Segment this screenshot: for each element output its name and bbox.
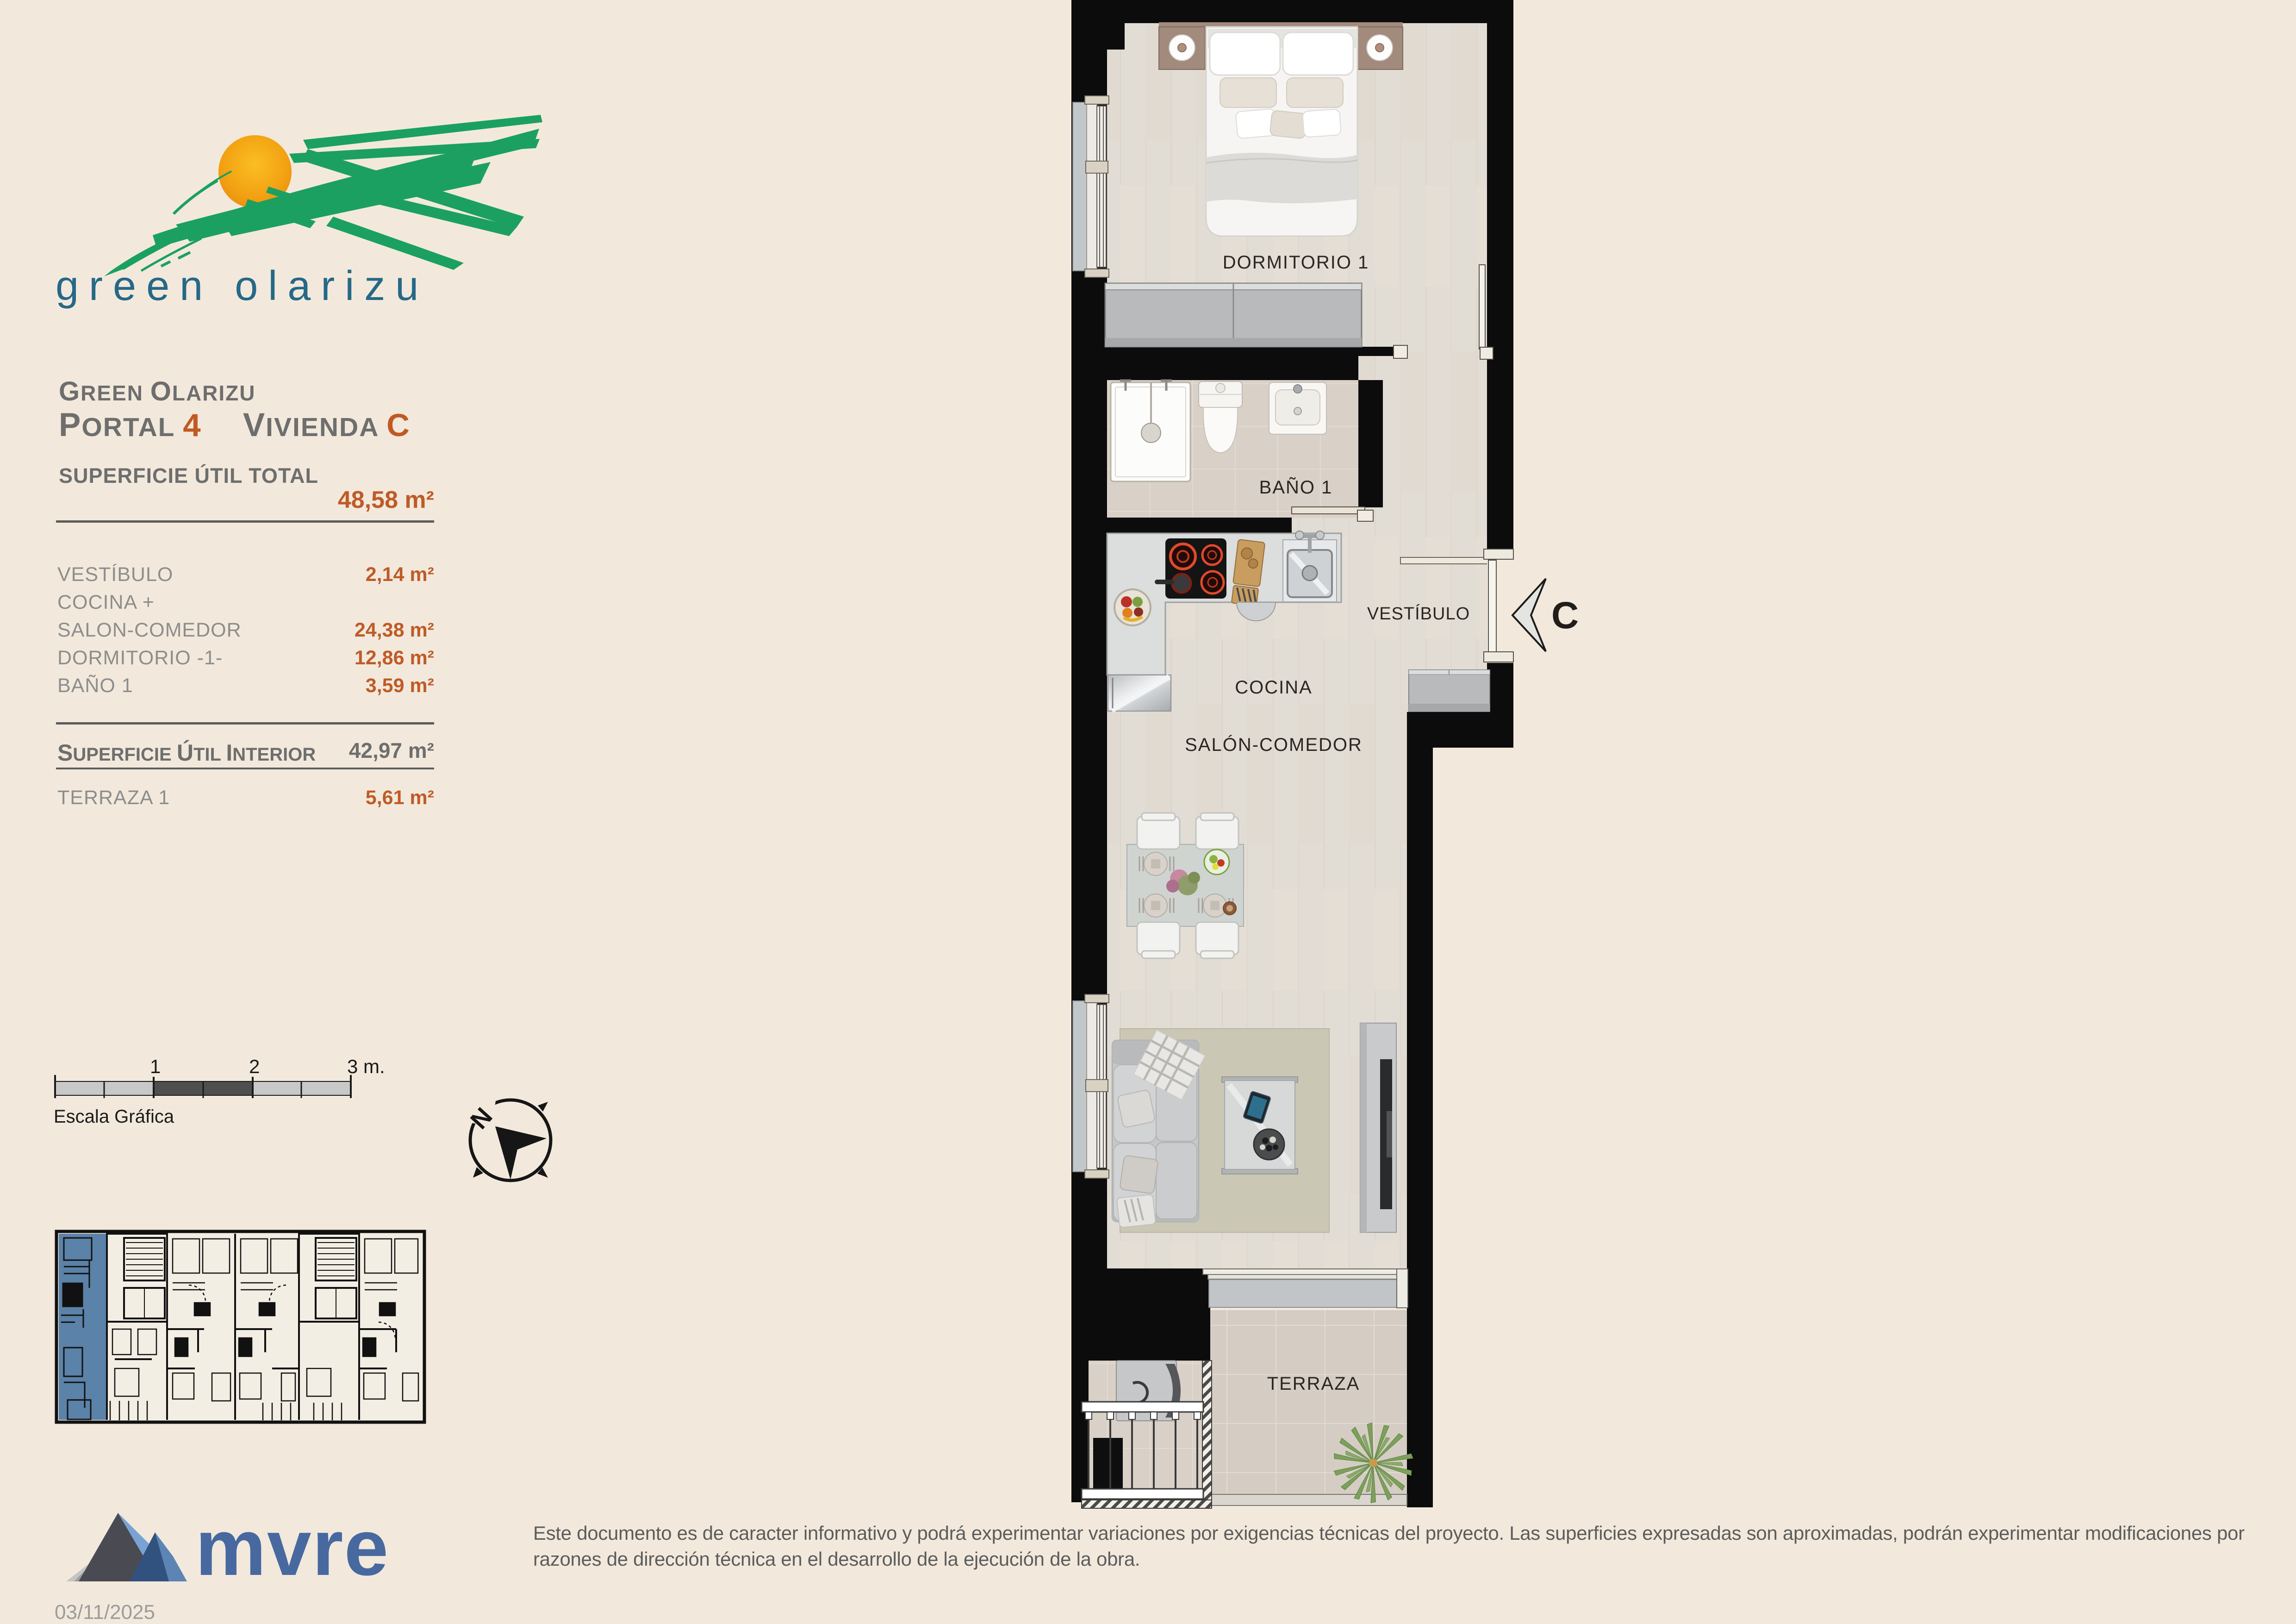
svg-text:BAÑO 1: BAÑO 1 — [1259, 477, 1333, 498]
svg-text:COCINA: COCINA — [1235, 677, 1313, 698]
svg-text:2: 2 — [249, 1056, 260, 1077]
svg-text:C: C — [1551, 594, 1579, 637]
svg-text:mvre: mvre — [195, 1503, 389, 1588]
svg-text:1: 1 — [150, 1056, 161, 1077]
svg-text:VESTÍBULO: VESTÍBULO — [1367, 604, 1470, 624]
svg-text:green olarizu: green olarizu — [56, 263, 429, 309]
svg-text:TERRAZA: TERRAZA — [1267, 1374, 1360, 1394]
svg-text:Escala Gráfica: Escala Gráfica — [54, 1106, 174, 1127]
svg-text:SALÓN-COMEDOR: SALÓN-COMEDOR — [1185, 734, 1363, 755]
svg-text:DORMITORIO 1: DORMITORIO 1 — [1223, 252, 1369, 273]
svg-text:3 m.: 3 m. — [347, 1056, 385, 1077]
